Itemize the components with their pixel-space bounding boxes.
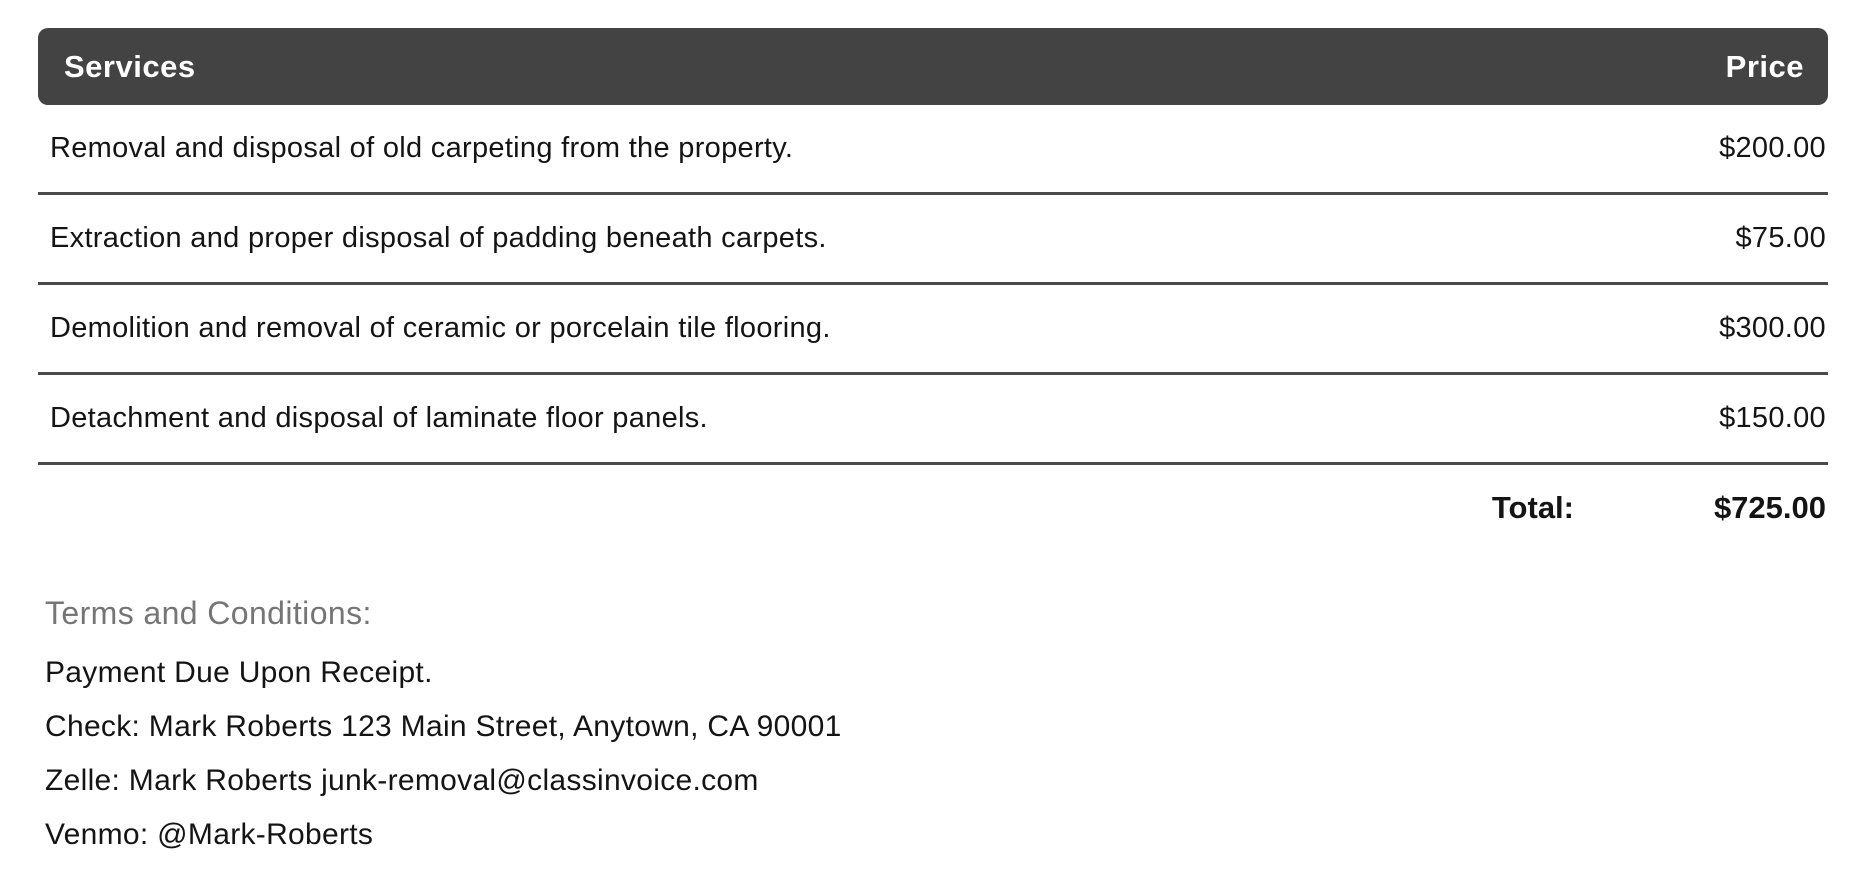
- service-description: Detachment and disposal of laminate floo…: [50, 402, 708, 435]
- table-row: Extraction and proper disposal of paddin…: [38, 195, 1828, 285]
- services-column-header: Services: [64, 49, 196, 85]
- table-row: Removal and disposal of old carpeting fr…: [38, 105, 1828, 195]
- table-row: Detachment and disposal of laminate floo…: [38, 375, 1828, 465]
- terms-lines: Payment Due Upon Receipt. Check: Mark Ro…: [45, 646, 1828, 862]
- total-value: $725.00: [1574, 490, 1826, 526]
- services-table-body: Removal and disposal of old carpeting fr…: [38, 105, 1828, 465]
- services-table-header: Services Price: [38, 28, 1828, 105]
- total-label: Total:: [1492, 490, 1574, 526]
- service-description: Removal and disposal of old carpeting fr…: [50, 132, 793, 165]
- terms-line: Venmo: @Mark-Roberts: [45, 808, 1828, 862]
- terms-heading: Terms and Conditions:: [45, 595, 1828, 632]
- terms-line: Check: Mark Roberts 123 Main Street, Any…: [45, 700, 1828, 754]
- invoice-page: Services Price Removal and disposal of o…: [38, 28, 1828, 862]
- price-column-header: Price: [1726, 49, 1804, 85]
- total-row: Total: $725.00: [38, 465, 1828, 551]
- terms-line: Payment Due Upon Receipt.: [45, 646, 1828, 700]
- service-price: $75.00: [1736, 222, 1827, 255]
- terms-line: Zelle: Mark Roberts junk-removal@classin…: [45, 754, 1828, 808]
- service-description: Extraction and proper disposal of paddin…: [50, 222, 827, 255]
- terms-section: Terms and Conditions: Payment Due Upon R…: [45, 595, 1828, 862]
- service-price: $150.00: [1719, 402, 1826, 435]
- table-row: Demolition and removal of ceramic or por…: [38, 285, 1828, 375]
- service-price: $200.00: [1719, 132, 1826, 165]
- service-price: $300.00: [1719, 312, 1826, 345]
- service-description: Demolition and removal of ceramic or por…: [50, 312, 831, 345]
